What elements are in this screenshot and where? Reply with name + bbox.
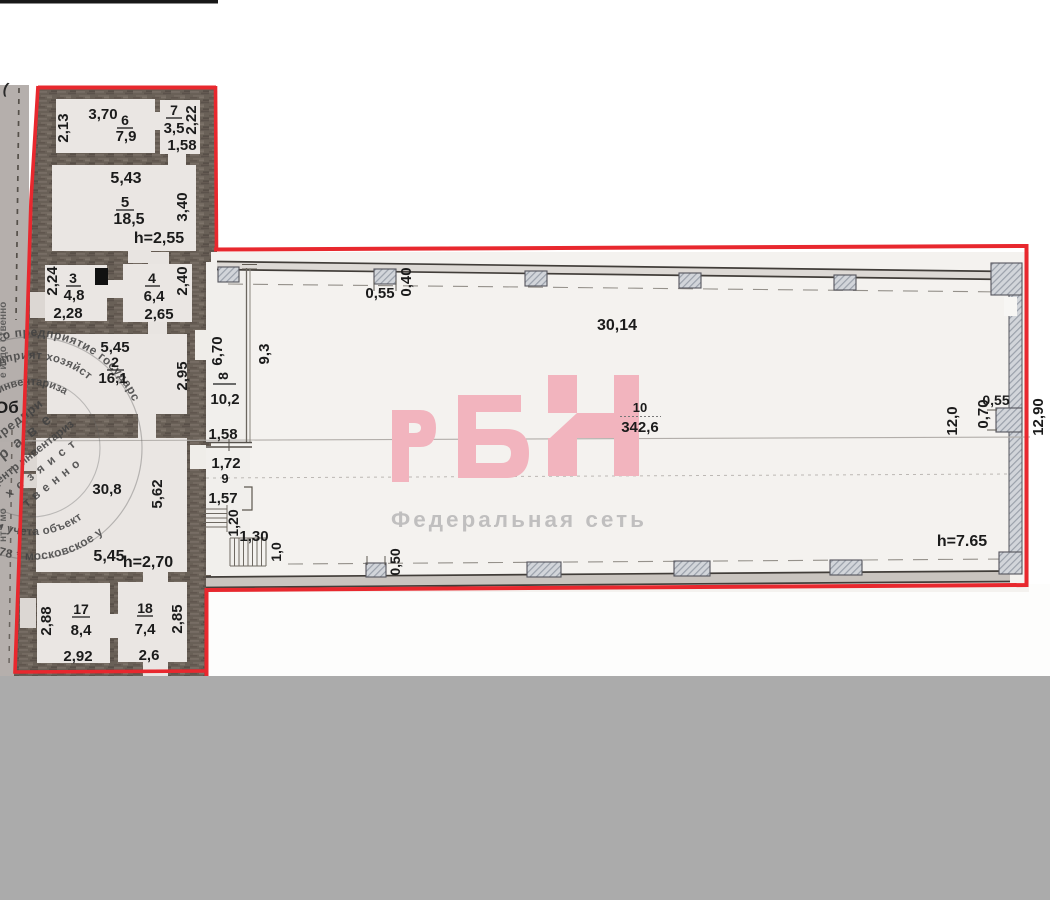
svg-text:4,8: 4,8 (64, 287, 85, 304)
svg-text:0,55: 0,55 (365, 285, 394, 302)
svg-text:2,24: 2,24 (44, 266, 61, 296)
svg-text:9,3: 9,3 (256, 344, 273, 365)
svg-text:16,1: 16,1 (98, 370, 127, 387)
svg-text:18: 18 (137, 600, 153, 616)
svg-text:6: 6 (121, 112, 129, 128)
svg-text:1,57: 1,57 (208, 490, 237, 507)
svg-text:30,8: 30,8 (92, 481, 121, 498)
svg-text:1,30: 1,30 (239, 528, 268, 545)
svg-text:7,9: 7,9 (116, 128, 137, 145)
svg-text:1,0: 1,0 (268, 542, 284, 562)
svg-text:8: 8 (215, 372, 231, 380)
svg-text:2,13: 2,13 (55, 113, 72, 142)
svg-text:1,72: 1,72 (211, 455, 240, 472)
svg-text:ственно: ственно (0, 302, 9, 342)
svg-text:7: 7 (170, 102, 178, 118)
svg-text:1,58: 1,58 (167, 137, 196, 154)
svg-text:30,14: 30,14 (597, 317, 637, 334)
svg-text:12,0: 12,0 (944, 406, 961, 435)
svg-text:5,62: 5,62 (149, 479, 166, 508)
svg-text:342,6: 342,6 (621, 419, 659, 436)
svg-text:3,40: 3,40 (174, 192, 191, 221)
svg-text:6,4: 6,4 (144, 288, 166, 305)
svg-text:5,45: 5,45 (93, 548, 124, 565)
svg-text:18,5: 18,5 (113, 211, 144, 228)
svg-text:0,50: 0,50 (387, 548, 403, 575)
svg-text:3: 3 (69, 270, 77, 286)
svg-text:h=7.65: h=7.65 (937, 533, 987, 550)
svg-text:2,85: 2,85 (169, 604, 186, 633)
svg-text:4: 4 (148, 270, 156, 286)
svg-text:2,40: 2,40 (174, 266, 191, 295)
svg-text:8,4: 8,4 (71, 622, 93, 639)
svg-text:5: 5 (121, 194, 129, 211)
svg-text:2,28: 2,28 (53, 305, 82, 322)
svg-text:3,70: 3,70 (88, 106, 117, 123)
svg-text:12,90: 12,90 (1030, 398, 1047, 436)
svg-text:1,58: 1,58 (208, 426, 237, 443)
svg-text:2: 2 (111, 354, 119, 370)
svg-text:2,6: 2,6 (139, 647, 160, 664)
svg-text:2,95: 2,95 (174, 361, 191, 390)
svg-text:9: 9 (221, 471, 228, 486)
svg-text:10,2: 10,2 (210, 391, 239, 408)
svg-text:0,55: 0,55 (982, 392, 1009, 408)
svg-text:10: 10 (633, 400, 647, 415)
svg-text:2,88: 2,88 (38, 606, 55, 635)
svg-text:17: 17 (73, 601, 89, 617)
svg-text:е издо: е издо (0, 346, 9, 378)
svg-text:Об: Об (0, 398, 19, 417)
svg-text:0,40: 0,40 (398, 267, 415, 296)
svg-text:Федеральная сеть: Федеральная сеть (391, 507, 647, 532)
svg-text:3,5: 3,5 (164, 120, 185, 137)
svg-text:h=2,70: h=2,70 (123, 554, 173, 571)
svg-text:2,22: 2,22 (183, 105, 200, 134)
svg-text:h=2,55: h=2,55 (134, 230, 184, 247)
svg-text:2,65: 2,65 (144, 306, 173, 323)
svg-text:2,92: 2,92 (63, 648, 92, 665)
svg-text:5,43: 5,43 (110, 170, 141, 187)
svg-text:7,4: 7,4 (135, 621, 157, 638)
svg-text:6,70: 6,70 (209, 336, 226, 365)
svg-text:нт * мо: нт * мо (0, 508, 9, 542)
